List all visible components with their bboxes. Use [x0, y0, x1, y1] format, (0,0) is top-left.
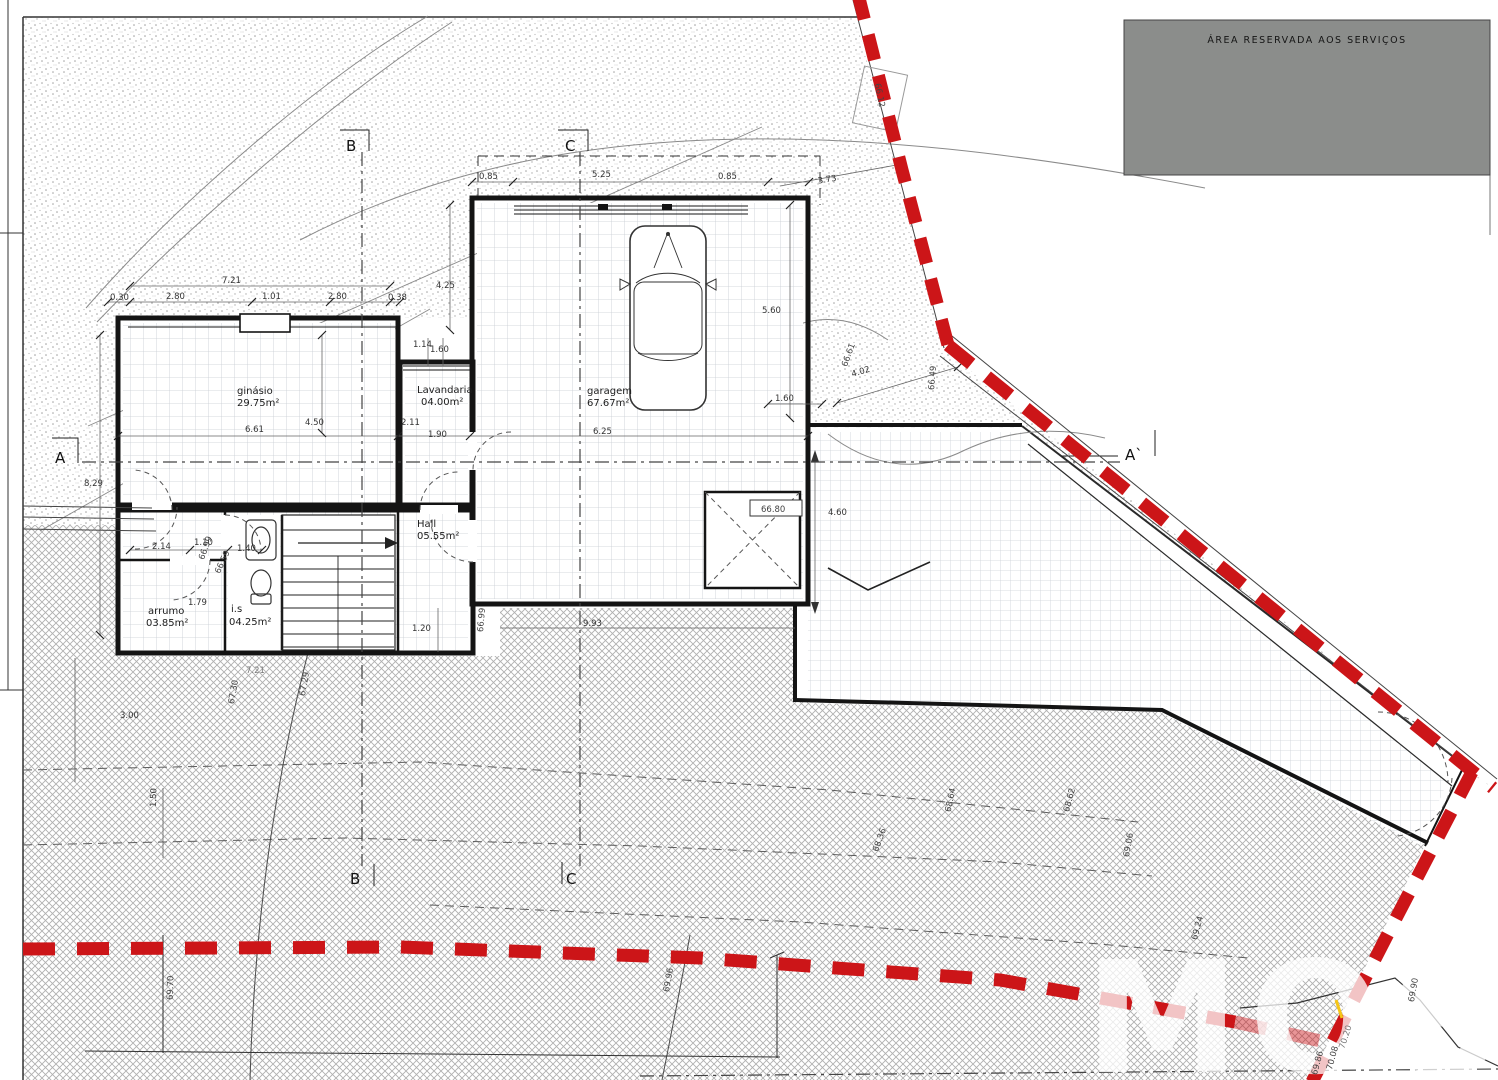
room-area-hall: 05.55m² [417, 531, 459, 542]
elev-66-80: 66.80 [761, 505, 785, 515]
dim-8-29: 8.29 [84, 479, 103, 489]
ginasio-floor [123, 323, 395, 507]
elev-69-70: 69.70 [166, 976, 177, 1001]
dim-1-01: 1.01 [262, 292, 281, 302]
dim-0-85b: 0.85 [718, 172, 737, 182]
dim-1-90: 1.90 [428, 430, 447, 440]
dim-6-61: 6.61 [245, 425, 264, 435]
room-area-ginasio: 29.75m² [237, 398, 279, 409]
section-c-top-label: C [565, 137, 575, 155]
dim-4-50: 4.50 [305, 418, 324, 428]
dim-1-50: 1.50 [149, 788, 160, 807]
section-b-bottom-label: B [350, 870, 360, 888]
dim-0-38: 0.38 [388, 293, 407, 303]
dim-9-93: 9.93 [583, 619, 602, 629]
dim-2-80b: 2.80 [328, 292, 347, 302]
section-a-label: A [55, 449, 66, 467]
dim-1-60b: 1.60 [775, 394, 794, 404]
section-c-bottom-label: C [566, 870, 576, 888]
room-label-hall: Hall [417, 519, 436, 530]
reserved-area-label: ÁREA RESERVADA AOS SERVIÇOS [1207, 34, 1406, 46]
dim-7-21b: 7.21 [246, 666, 265, 676]
room-area-is: 04.25m² [229, 617, 271, 628]
room-area-garagem: 67.67m² [587, 398, 629, 409]
dim-2-11: 2.11 [401, 418, 420, 428]
floor-plan-canvas: A A` B C B C MOS ginásio 29.75m² Lavanda… [0, 0, 1498, 1080]
room-label-garagem: garagem [587, 386, 632, 397]
dim-1-60a: 1.60 [430, 345, 449, 355]
dim-0-85a: 0.85 [479, 172, 498, 182]
dim-2-14: 2.14 [152, 542, 171, 552]
dim-6-25: 6.25 [593, 427, 612, 437]
room-area-lavandaria: 04.00m² [421, 397, 463, 408]
floor-plan-sheet: A A` B C B C MOS ginásio 29.75m² Lavanda… [0, 0, 1498, 1080]
dim-5-60: 5.60 [762, 306, 781, 316]
watermark-text: MOS [1085, 928, 1498, 1080]
dim-4-60: 4.60 [828, 508, 847, 518]
dim-2-80a: 2.80 [166, 292, 185, 302]
reserved-area-box: ÁREA RESERVADA AOS SERVIÇOS [1124, 20, 1490, 175]
elev-66-49: 66.49 [927, 365, 939, 390]
room-label-is: i.s [231, 604, 242, 615]
stairs-floor [282, 515, 395, 650]
dim-4-25: 4.25 [436, 281, 455, 291]
dim-3-00: 3.00 [120, 711, 139, 721]
dim-7-21: 7.21 [222, 276, 241, 286]
room-label-ginasio: ginásio [237, 385, 273, 397]
elev-66-99b: 66.99 [476, 607, 488, 632]
elev-66-80-box: 66.80 [750, 500, 802, 516]
section-b-top-label: B [346, 137, 356, 155]
dim-1-79: 1.79 [188, 598, 207, 608]
car-top-view [620, 226, 716, 410]
room-label-lavandaria: Lavandaria [417, 385, 473, 396]
dim-1-40: 1.40 [237, 544, 256, 554]
dim-5-25: 5.25 [592, 170, 611, 180]
is-floor [228, 515, 280, 650]
room-label-arrumo: arrumo [148, 606, 184, 617]
dim-1-20: 1.20 [412, 624, 431, 634]
section-a-prime-label: A` [1125, 446, 1143, 464]
room-area-arrumo: 03.85m² [146, 618, 188, 629]
dim-0-30: 0.30 [110, 293, 129, 303]
